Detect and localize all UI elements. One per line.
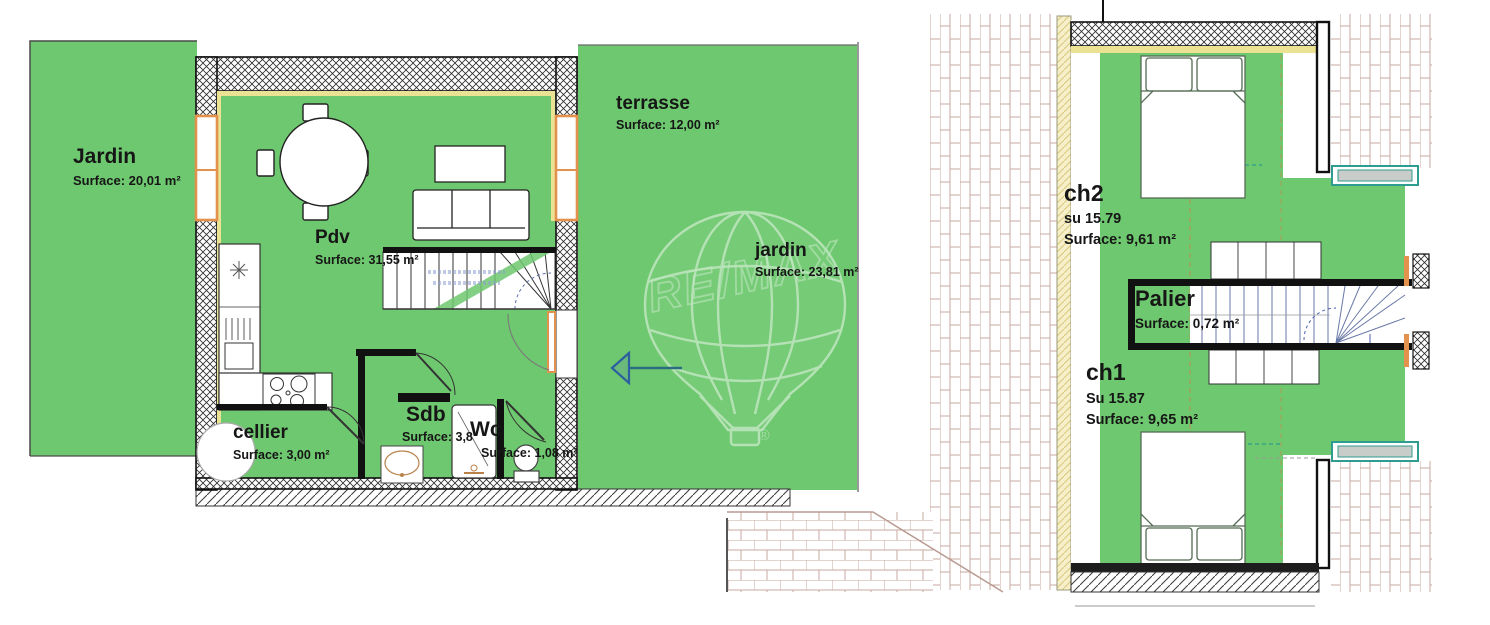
room-name: Jardin [73, 146, 181, 168]
window-left [196, 116, 217, 220]
room-name: ch1 [1086, 360, 1198, 384]
sofa [413, 190, 529, 240]
velux-window-top [1332, 166, 1418, 185]
upper-right-wall-bottom [1317, 460, 1329, 568]
velux-window-bottom [1332, 442, 1418, 461]
coffee-table [435, 146, 505, 182]
label-terrasse: terrasse Surface: 12,00 m² [616, 94, 720, 132]
wall-lining [1071, 46, 1319, 53]
window-right [556, 116, 577, 220]
floorplan-drawing: RE/MAX ® [0, 0, 1490, 625]
room-name: Palier [1135, 287, 1239, 310]
room-surface: Surface: 31,55 m² [315, 254, 419, 267]
label-sdb-name: Sdb [406, 404, 446, 426]
upper-top-wall [1071, 22, 1319, 46]
room-surface: Surface: 3,00 m² [233, 449, 330, 462]
roof-brick-right-top [1331, 14, 1432, 168]
wall-stub [1413, 332, 1429, 369]
room-su: su 15.79 [1064, 212, 1176, 227]
upper-bottom-wall [1071, 563, 1319, 572]
window-frame [1404, 256, 1409, 286]
upper-bottom-hatch [1071, 572, 1319, 592]
bed-ch2 [1141, 56, 1245, 198]
jardin-left-area [30, 41, 197, 456]
roof-brick-left [930, 14, 1057, 590]
upper-right-wall-top [1317, 22, 1329, 172]
label-sdb-surface: Surface: 3,8 [402, 431, 473, 444]
room-surface: Surface: 9,65 m² [1086, 413, 1198, 428]
label-wc-surface: Surface: 1,08 m² [481, 447, 578, 460]
label-cellier: cellier Surface: 3,00 m² [233, 423, 330, 462]
roof-brick-bottom [727, 512, 933, 592]
label-wc-name: Wc [470, 419, 502, 441]
label-ch1: ch1 Su 15.87 Surface: 9,65 m² [1086, 360, 1198, 429]
wall-stub [1413, 254, 1429, 288]
bed-ch1 [1141, 432, 1245, 564]
closet-top [1211, 242, 1321, 279]
room-surface: Surface: 9,61 m² [1064, 233, 1176, 248]
watermark-registered-mark: ® [758, 427, 769, 444]
bottom-hatch-strip [196, 489, 790, 506]
label-jardin-left: Jardin Surface: 20,01 m² [73, 146, 181, 188]
label-jardin-right: jardin Surface: 23,81 m² [755, 241, 859, 279]
room-name: jardin [755, 241, 859, 261]
closet-bottom [1209, 350, 1319, 384]
room-surface: Surface: 0,72 m² [1135, 317, 1239, 331]
room-surface: Surface: 20,01 m² [73, 174, 181, 188]
washbasin [381, 446, 423, 483]
upper-left-wall [1057, 16, 1071, 590]
stove-icon [263, 374, 315, 409]
room-su: Su 15.87 [1086, 392, 1198, 407]
room-name: cellier [233, 423, 330, 443]
window-frame [1404, 334, 1409, 367]
label-ch2: ch2 su 15.79 Surface: 9,61 m² [1064, 181, 1176, 249]
roof-brick-right-bottom [1331, 461, 1432, 592]
room-surface: Surface: 12,00 m² [616, 119, 720, 132]
label-palier: Palier Surface: 0,72 m² [1135, 287, 1239, 331]
wall-lining [551, 91, 555, 221]
room-name: Pdv [315, 228, 419, 248]
room-name: terrasse [616, 94, 720, 114]
room-surface: Surface: 23,81 m² [755, 266, 859, 279]
floorplan-page: RE/MAX ® [0, 0, 1490, 625]
label-pdv: Pdv Surface: 31,55 m² [315, 228, 419, 267]
wall-lining [217, 91, 555, 96]
room-name: ch2 [1064, 181, 1176, 205]
